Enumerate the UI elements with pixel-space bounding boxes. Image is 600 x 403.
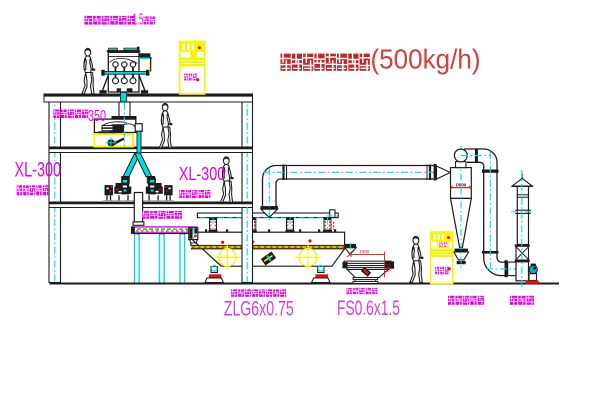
svg-text:1.5: 1.5 — [133, 12, 144, 29]
svg-text:(500kg/h): (500kg/h) — [371, 44, 481, 75]
svg-text:ZLG6x0.75: ZLG6x0.75 — [224, 298, 294, 321]
svg-text:1500: 1500 — [360, 249, 370, 254]
svg-text:XL-300: XL-300 — [15, 159, 62, 182]
svg-text:540: 540 — [387, 263, 393, 272]
svg-text:350: 350 — [88, 108, 106, 125]
svg-text:FS0.6x1.5: FS0.6x1.5 — [337, 297, 400, 320]
svg-text:XL-300: XL-300 — [179, 163, 226, 184]
